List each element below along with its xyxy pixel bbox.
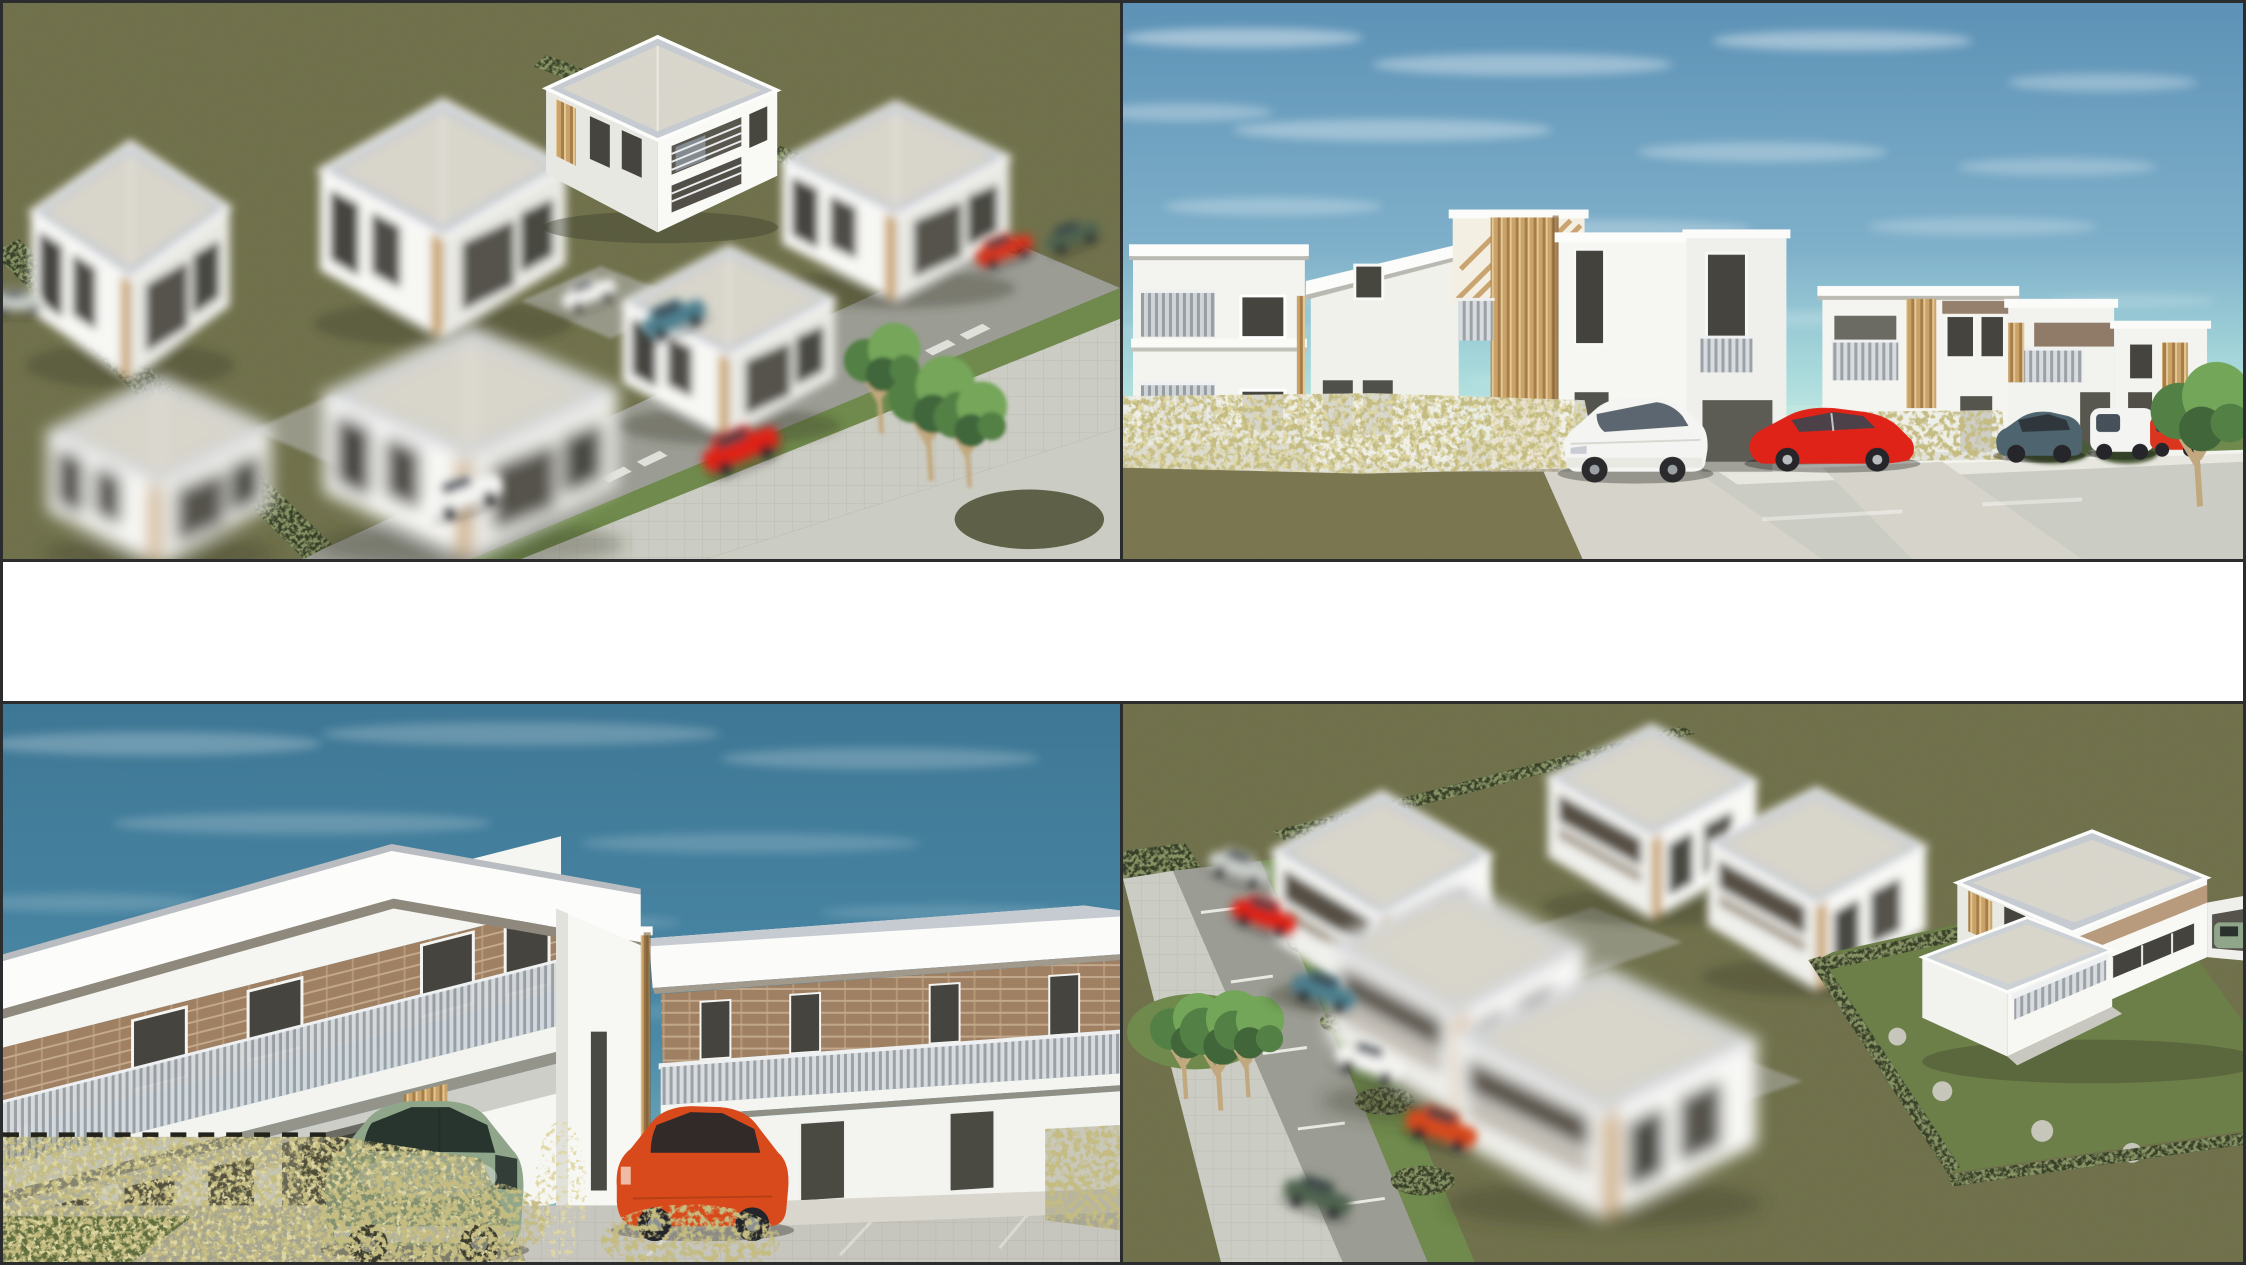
aerial-render-b	[1123, 704, 2243, 1262]
panel-bottom-left	[3, 701, 1123, 1262]
panel-top-left	[3, 3, 1123, 562]
panel-bottom-right	[1123, 701, 2243, 1262]
render-collage-sheet	[0, 0, 2246, 1265]
aerial-render-a	[3, 3, 1120, 559]
panel-top-right	[1123, 3, 2243, 562]
blank-divider-band	[3, 562, 2243, 701]
hedge-front	[1123, 393, 1599, 473]
car-van-white	[2088, 408, 2156, 460]
corner-shrub	[955, 490, 1104, 550]
hedge-right	[1045, 1125, 1120, 1230]
street-render-a	[1123, 3, 2243, 559]
wood-door	[556, 99, 576, 166]
street-render-b	[3, 704, 1120, 1262]
